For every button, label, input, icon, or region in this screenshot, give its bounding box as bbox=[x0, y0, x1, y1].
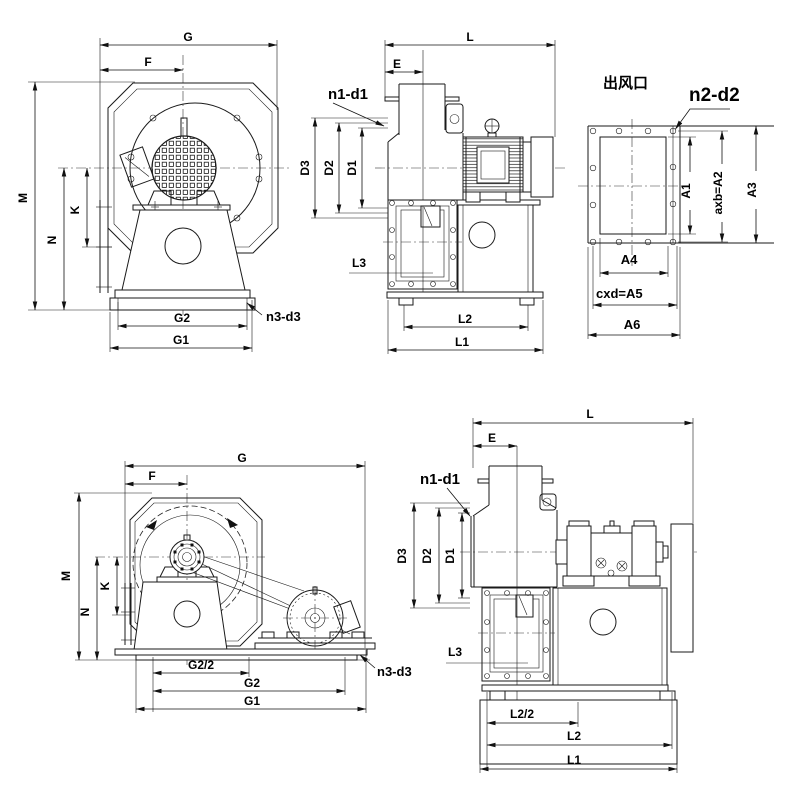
dim-label-L: L bbox=[586, 407, 593, 421]
side-view-belt-drive: L E n1-d1 D3 D2 D1 L3 L2/2 L2 L1 bbox=[395, 407, 697, 773]
dim-label-E: E bbox=[488, 431, 496, 445]
dim-label-L2: L2 bbox=[567, 729, 581, 743]
dim-label-A2: axb=A2 bbox=[711, 171, 725, 214]
dim-label-L1: L1 bbox=[567, 753, 581, 767]
dim-label-D1: D1 bbox=[345, 160, 359, 176]
outlet-title: 出风口 bbox=[603, 74, 648, 92]
dim-label-N: N bbox=[78, 608, 92, 617]
dim-label-A6: A6 bbox=[624, 317, 641, 332]
dim-label-L3: L3 bbox=[448, 645, 462, 659]
dim-label-E: E bbox=[393, 57, 401, 71]
dim-label-A3: A3 bbox=[745, 182, 759, 198]
dim-label-D2: D2 bbox=[322, 160, 336, 176]
dim-label-A5: cxd=A5 bbox=[596, 286, 643, 301]
dim-label-F: F bbox=[148, 469, 155, 483]
dim-label-D2: D2 bbox=[420, 548, 434, 564]
dim-label-L1: L1 bbox=[455, 335, 469, 349]
front-view-belt-drive: G F M N K G2/2 G2 G1 n3-d3 bbox=[59, 451, 412, 713]
dim-label-D3: D3 bbox=[298, 160, 312, 176]
callout-n3-d3: n3-d3 bbox=[266, 309, 301, 324]
dim-label-A4: A4 bbox=[621, 252, 638, 267]
dim-label-L2-half: L2/2 bbox=[510, 707, 534, 721]
callout-n1-d1: n1-d1 bbox=[328, 86, 368, 103]
terminal-box-front bbox=[120, 147, 154, 187]
dim-label-G2: G2 bbox=[244, 676, 260, 690]
dim-label-M: M bbox=[16, 193, 30, 203]
dim-label-L3: L3 bbox=[352, 256, 366, 270]
dim-label-A1: A1 bbox=[679, 183, 693, 199]
dim-label-F: F bbox=[144, 55, 151, 69]
dim-label-G2-half: G2/2 bbox=[188, 658, 214, 672]
dim-label-M: M bbox=[59, 571, 73, 581]
drawing-canvas: G F M N K G2 G1 n3-d3 bbox=[0, 0, 790, 798]
side-view-direct-drive: L E n1-d1 D3 D2 D1 L3 L2 L1 bbox=[298, 30, 565, 354]
dim-label-L: L bbox=[466, 30, 473, 44]
dim-label-L2: L2 bbox=[458, 312, 472, 326]
callout-n2-d2: n2-d2 bbox=[689, 85, 740, 106]
dim-label-D1: D1 bbox=[443, 548, 457, 564]
dim-label-D3: D3 bbox=[395, 548, 409, 564]
callout-n1-d1: n1-d1 bbox=[420, 471, 460, 488]
callout-n3-d3: n3-d3 bbox=[377, 664, 412, 679]
dim-label-G: G bbox=[237, 451, 246, 465]
dim-label-G1: G1 bbox=[173, 333, 189, 347]
dim-label-G: G bbox=[183, 30, 192, 44]
dim-label-K: K bbox=[68, 205, 82, 214]
front-view-direct-drive: G F M N K G2 G1 n3-d3 bbox=[16, 30, 301, 352]
dim-label-N: N bbox=[45, 236, 59, 245]
dim-label-K: K bbox=[98, 581, 112, 590]
dim-label-G1: G1 bbox=[244, 694, 260, 708]
fan-dimension-drawing-sheet: G F M N K G2 G1 n3-d3 bbox=[0, 0, 790, 798]
dim-label-G2: G2 bbox=[174, 311, 190, 325]
outlet-flange-detail: 出风口 n2-d2 A1 axb=A2 A3 A4 cxd=A5 A6 bbox=[578, 74, 774, 339]
